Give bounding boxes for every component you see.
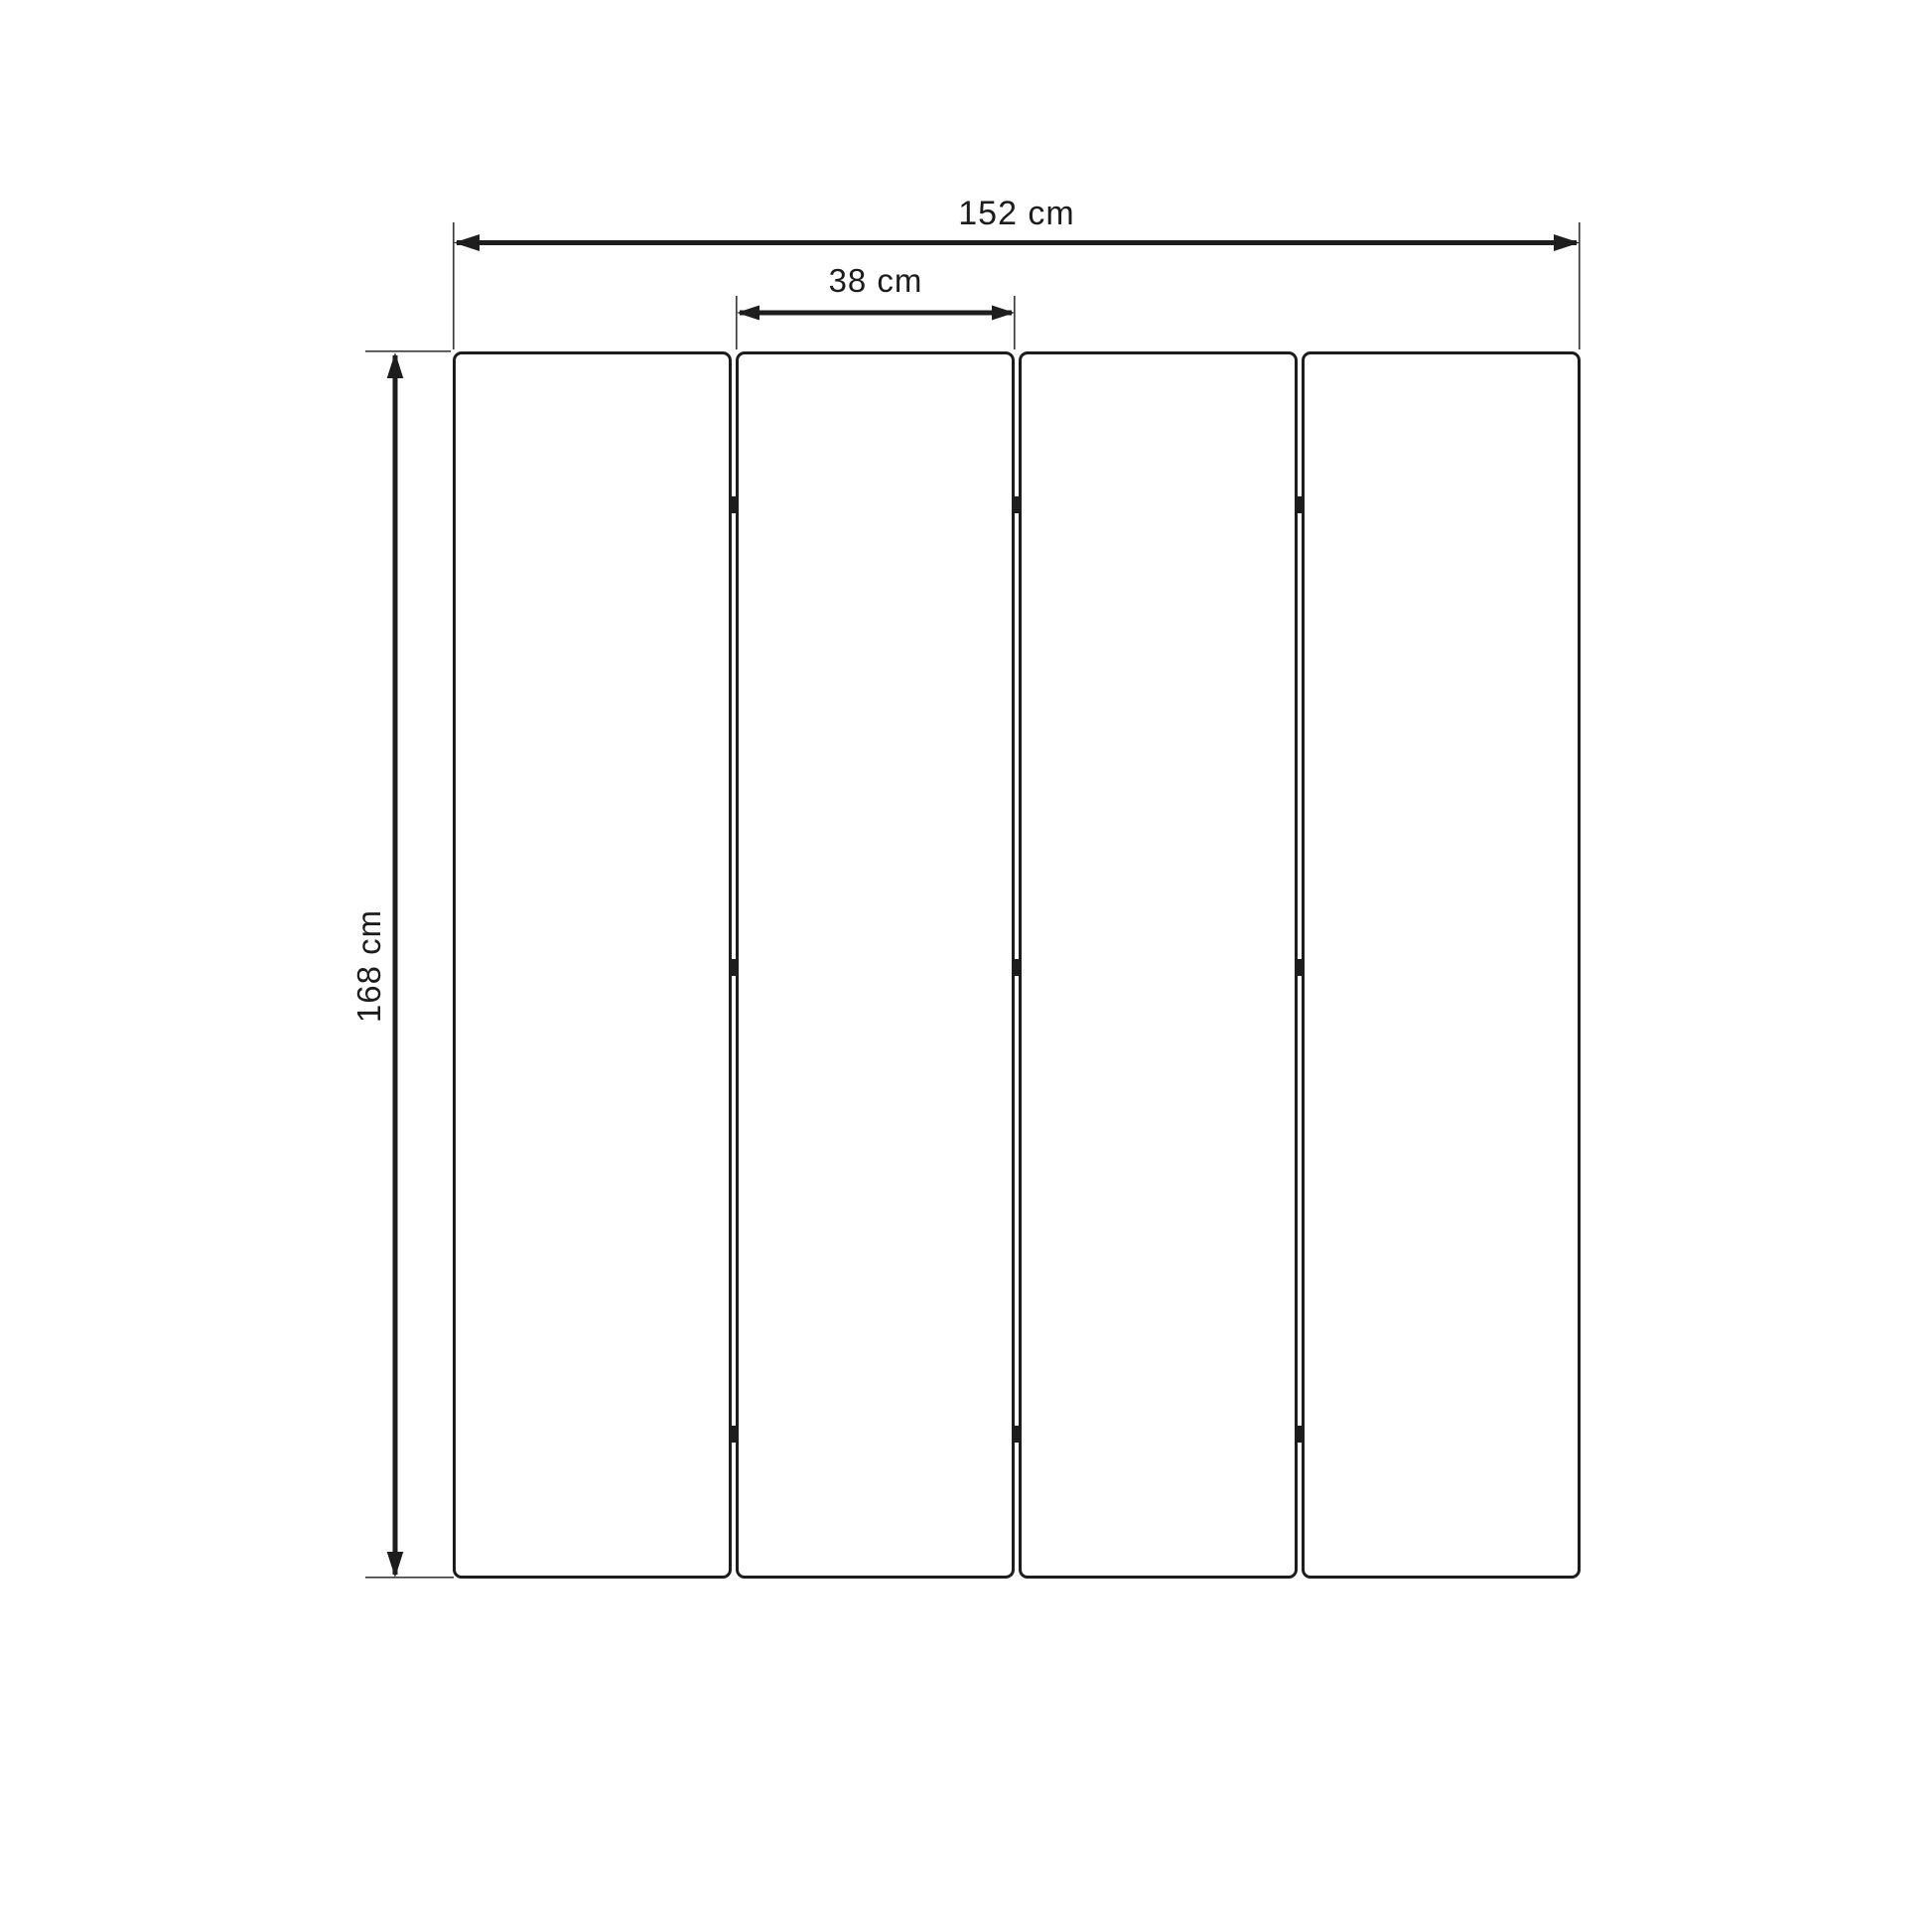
hinge [1295,496,1305,513]
panel-1 [453,351,732,1579]
hinge [729,496,739,513]
hinge [1012,959,1022,976]
height-label: 168 cm [350,817,388,1115]
panel-2 [736,351,1015,1579]
arrow-right-icon [992,306,1015,321]
panel-width-dimension [737,296,1015,349]
panel-width-label: 38 cm [727,262,1025,300]
hinge [729,959,739,976]
hinge [1295,1426,1305,1443]
hinge [1012,1426,1022,1443]
arrow-down-icon [387,1552,404,1578]
hinge [1012,496,1022,513]
hinge [729,1426,739,1443]
arrow-up-icon [387,352,404,378]
arrow-left-icon [454,234,480,251]
dimension-drawing: 152 cm 38 cm 168 cm [0,0,1932,1932]
panel-4 [1302,351,1581,1579]
arrow-right-icon [1554,234,1580,251]
total-width-label: 152 cm [868,195,1166,233]
arrow-left-icon [737,306,759,321]
panel-3 [1019,351,1298,1579]
hinge [1295,959,1305,976]
